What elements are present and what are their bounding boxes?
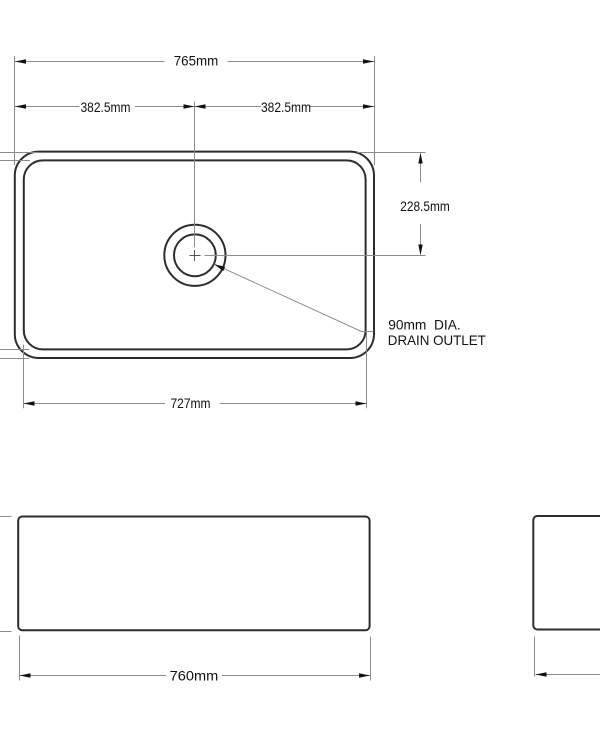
svg-text:90mm DIA.: 90mm DIA. xyxy=(388,316,461,332)
svg-text:382.5mm: 382.5mm xyxy=(261,99,311,115)
svg-text:727mm: 727mm xyxy=(171,395,211,411)
svg-text:DRAIN OUTLET: DRAIN OUTLET xyxy=(388,332,486,348)
svg-text:765mm: 765mm xyxy=(174,52,219,68)
svg-text:382.5mm: 382.5mm xyxy=(81,99,131,115)
svg-text:760mm: 760mm xyxy=(170,667,219,683)
svg-text:228.5mm: 228.5mm xyxy=(400,198,450,214)
